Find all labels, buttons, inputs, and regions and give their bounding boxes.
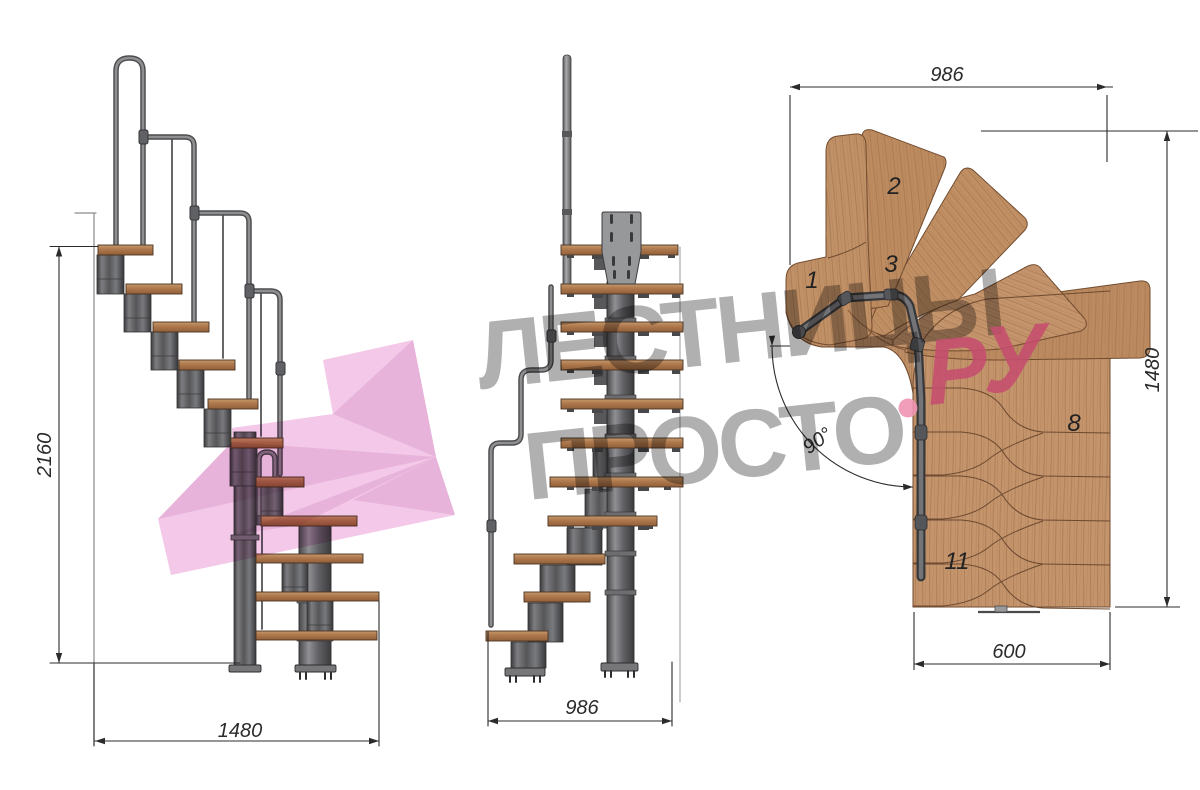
svg-text:2160: 2160	[34, 433, 56, 479]
svg-text:986: 986	[565, 697, 599, 719]
svg-text:11: 11	[945, 548, 970, 575]
svg-text:600: 600	[992, 641, 1025, 663]
svg-text:1480: 1480	[218, 720, 263, 742]
svg-text:986: 986	[930, 64, 964, 86]
svg-text:2: 2	[886, 173, 900, 200]
svg-text:8: 8	[1067, 410, 1081, 437]
svg-text:1480: 1480	[1142, 348, 1164, 393]
